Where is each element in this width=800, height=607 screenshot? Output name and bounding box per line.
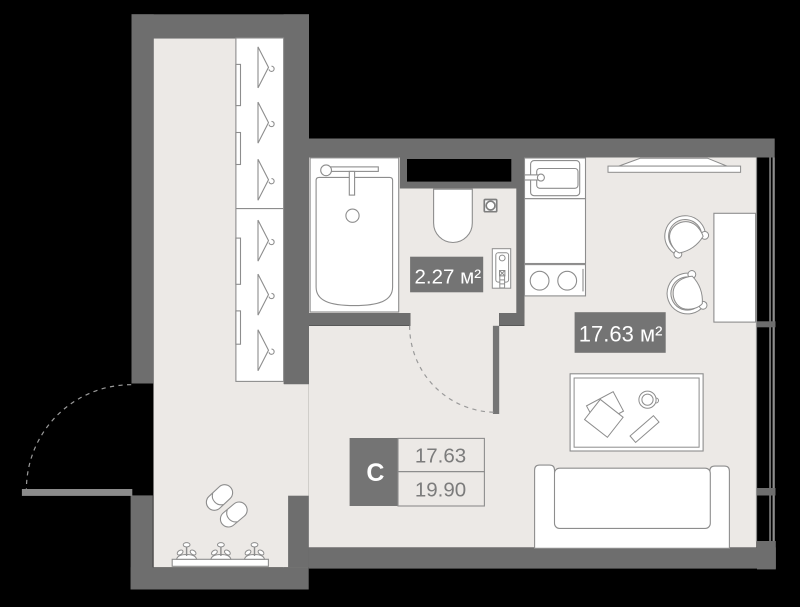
svg-text:17.63 м²: 17.63 м² [579,322,663,347]
svg-text:2.27 м²: 2.27 м² [415,266,482,289]
svg-text:С: С [366,459,384,487]
svg-text:19.90: 19.90 [415,479,466,502]
svg-text:17.63: 17.63 [415,445,466,468]
